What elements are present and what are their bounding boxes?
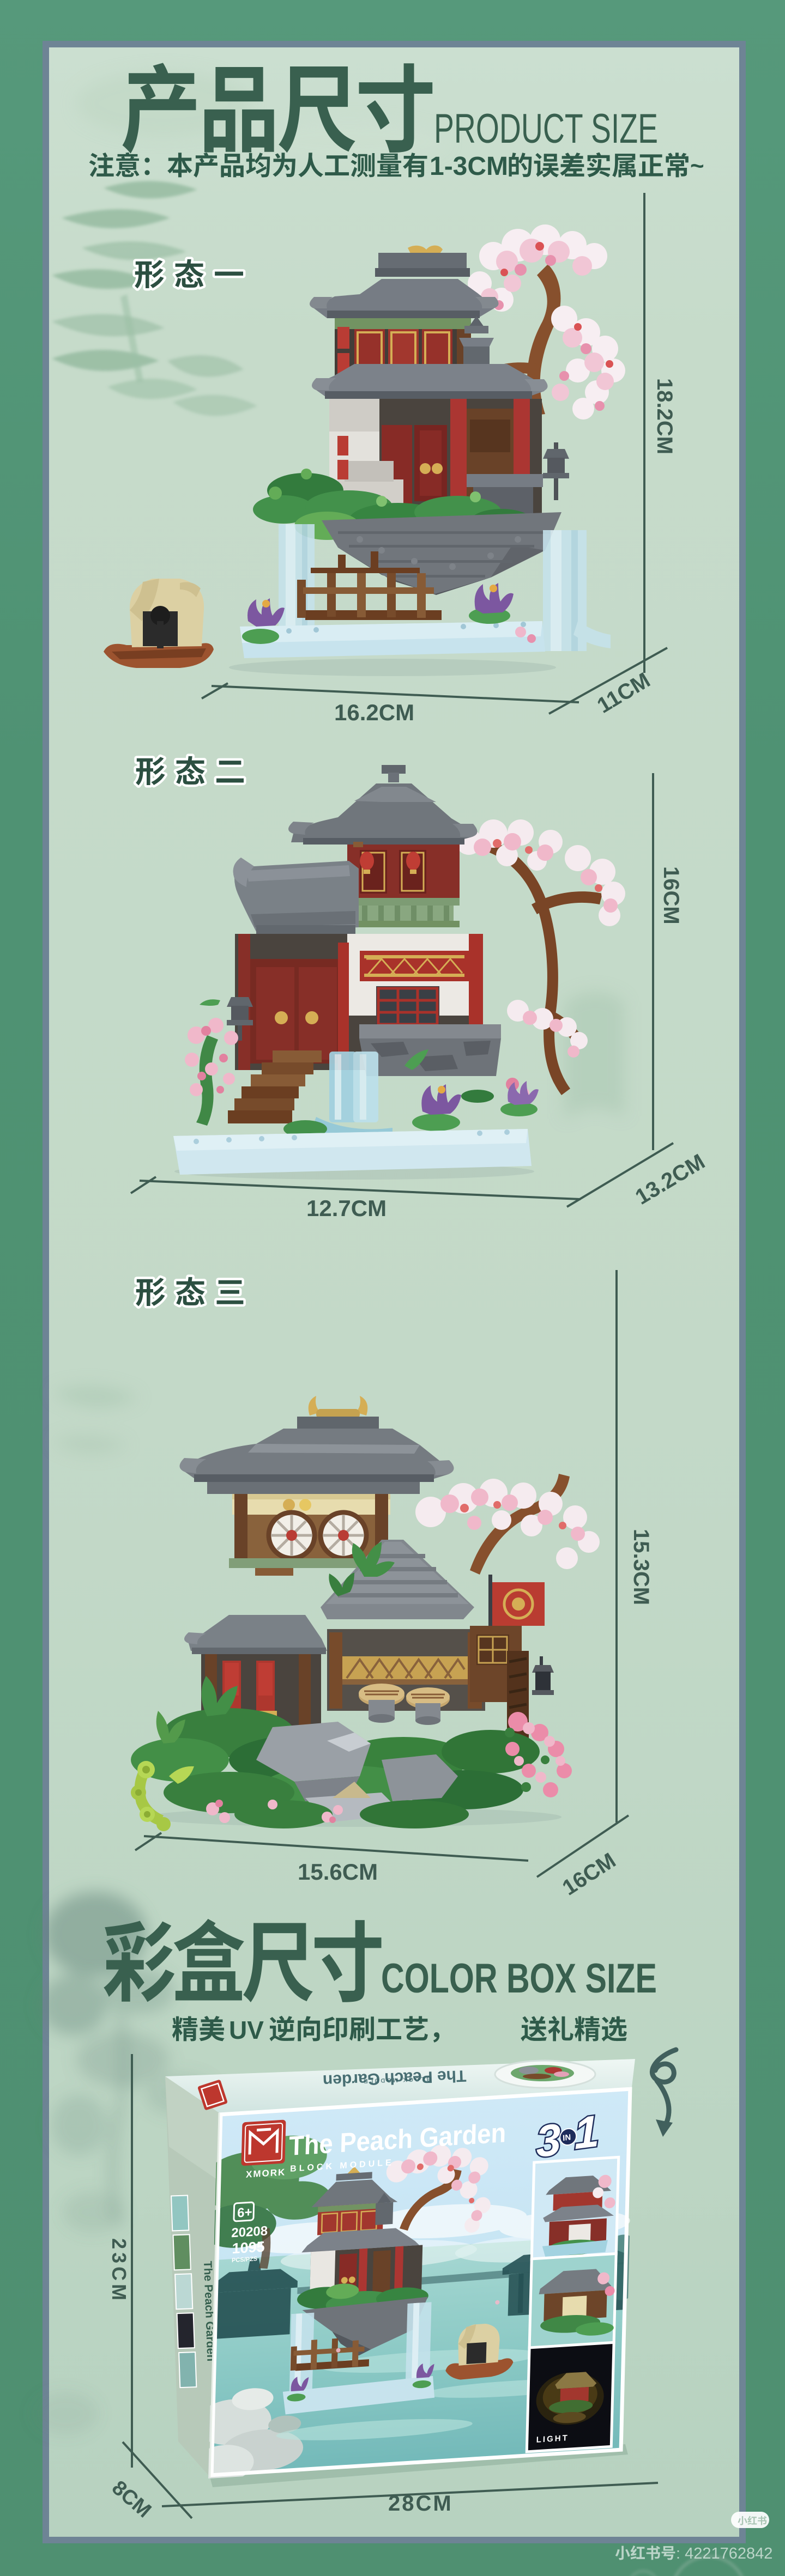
svg-text:3: 3	[535, 2115, 562, 2167]
svg-text:IN: IN	[563, 2133, 571, 2143]
svg-text:20208: 20208	[231, 2223, 268, 2240]
svg-text:1095: 1095	[232, 2238, 265, 2257]
svg-text:1: 1	[573, 2106, 600, 2159]
svg-text:6+: 6+	[237, 2205, 252, 2221]
svg-text:: 4221762842: : 4221762842	[676, 2545, 772, 2562]
